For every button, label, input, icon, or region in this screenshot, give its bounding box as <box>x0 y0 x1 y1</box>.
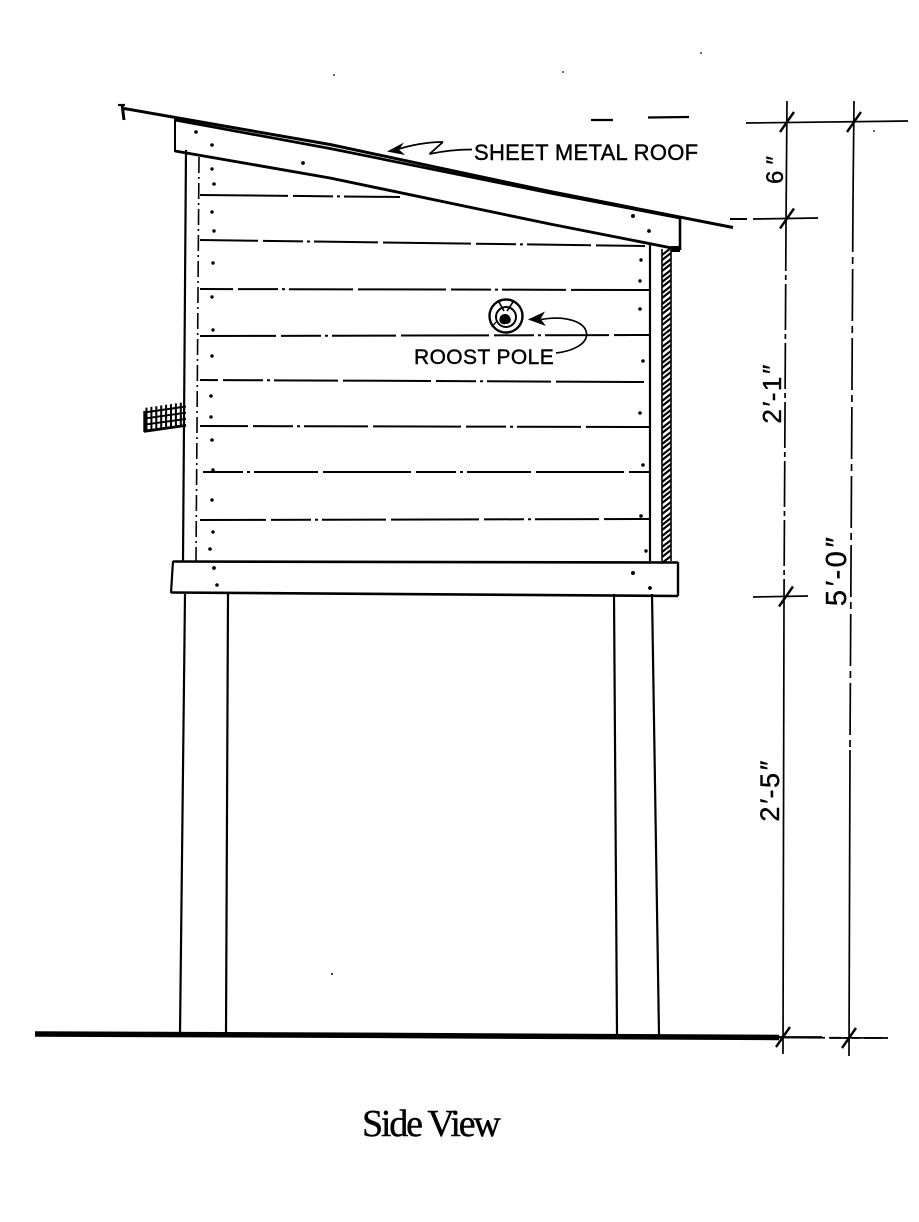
svg-text:2′-5″: 2′-5″ <box>755 760 785 821</box>
svg-text:Side View: Side View <box>362 1103 501 1145</box>
svg-text:SHEET METAL ROOF: SHEET METAL ROOF <box>474 140 698 165</box>
svg-text:2′-1″: 2′-1″ <box>757 364 787 423</box>
svg-text:5′-0″: 5′-0″ <box>821 536 853 606</box>
svg-text:ROOST POLE: ROOST POLE <box>414 346 554 369</box>
svg-text:6″: 6″ <box>762 152 789 184</box>
